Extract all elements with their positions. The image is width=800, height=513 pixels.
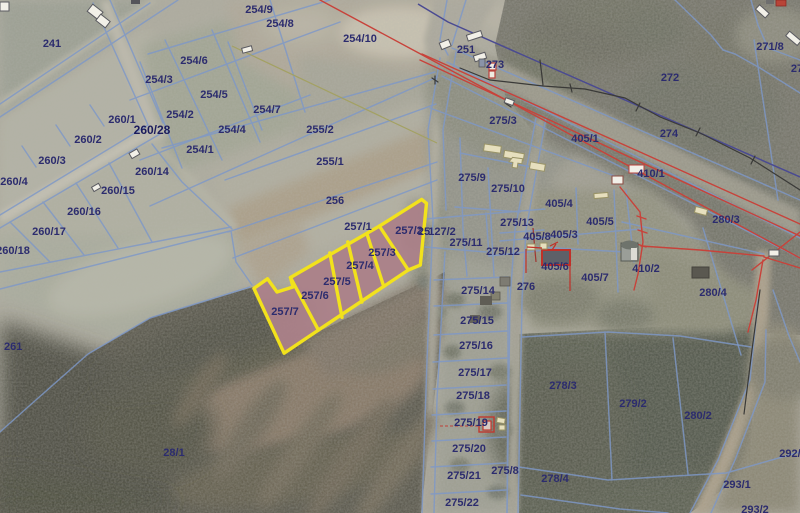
svg-text:275/16: 275/16	[459, 340, 493, 352]
svg-text:28/1: 28/1	[163, 447, 184, 459]
svg-text:255/2: 255/2	[306, 124, 334, 136]
svg-text:257/4: 257/4	[346, 260, 374, 272]
svg-text:255/1: 255/1	[316, 156, 344, 168]
svg-text:405/4: 405/4	[545, 198, 573, 210]
svg-text:275/3: 275/3	[489, 115, 517, 127]
svg-text:275/20: 275/20	[452, 443, 486, 455]
svg-text:260/16: 260/16	[67, 206, 101, 218]
svg-text:260/14: 260/14	[135, 166, 170, 178]
svg-text:257/5: 257/5	[323, 276, 351, 288]
svg-text:280/3: 280/3	[712, 214, 740, 226]
svg-text:405/8: 405/8	[523, 231, 551, 243]
svg-text:260/15: 260/15	[101, 185, 135, 197]
svg-text:260/28: 260/28	[134, 123, 171, 137]
svg-text:260/17: 260/17	[32, 226, 66, 238]
svg-text:260/3: 260/3	[38, 155, 66, 167]
svg-text:260/2: 260/2	[74, 134, 102, 146]
svg-text:260/18: 260/18	[0, 245, 30, 257]
svg-text:272: 272	[661, 72, 679, 84]
svg-text:254/9: 254/9	[245, 4, 273, 16]
svg-text:257/2: 257/2	[395, 225, 423, 237]
svg-text:254/6: 254/6	[180, 55, 208, 67]
svg-text:275/21: 275/21	[447, 470, 481, 482]
svg-text:405/3: 405/3	[550, 229, 578, 241]
svg-text:254/7: 254/7	[253, 104, 281, 116]
svg-text:260/4: 260/4	[0, 176, 28, 188]
svg-text:275/10: 275/10	[491, 183, 525, 195]
svg-text:405/1: 405/1	[571, 133, 599, 145]
svg-text:275/22: 275/22	[445, 497, 479, 509]
svg-text:292/2: 292/2	[779, 448, 800, 460]
svg-text:405/5: 405/5	[586, 216, 614, 228]
svg-text:273: 273	[486, 59, 504, 71]
svg-text:254/3: 254/3	[145, 74, 173, 86]
svg-text:260/1: 260/1	[108, 114, 136, 126]
svg-text:274: 274	[660, 128, 679, 140]
svg-text:278/3: 278/3	[549, 380, 577, 392]
svg-text:254/10: 254/10	[343, 33, 377, 45]
svg-text:275/14: 275/14	[461, 285, 496, 297]
svg-text:254/8: 254/8	[266, 18, 294, 30]
svg-text:278/4: 278/4	[541, 473, 569, 485]
svg-text:275/8: 275/8	[491, 465, 519, 477]
svg-text:275/17: 275/17	[458, 367, 492, 379]
svg-text:257/6: 257/6	[301, 290, 329, 302]
svg-text:275/9: 275/9	[458, 172, 486, 184]
svg-text:251: 251	[457, 44, 475, 56]
svg-text:293/2: 293/2	[741, 504, 769, 513]
svg-text:293/1: 293/1	[723, 479, 751, 491]
svg-text:254/4: 254/4	[218, 124, 246, 136]
svg-text:275/15: 275/15	[460, 315, 494, 327]
svg-text:257/3: 257/3	[368, 247, 396, 259]
svg-text:276: 276	[517, 281, 535, 293]
svg-text:257/1: 257/1	[344, 221, 372, 233]
svg-text:271/8: 271/8	[756, 41, 784, 53]
svg-text:241: 241	[43, 38, 61, 50]
svg-text:254/1: 254/1	[186, 144, 214, 156]
svg-text:275/13: 275/13	[500, 217, 534, 229]
svg-text:275/19: 275/19	[454, 417, 488, 429]
svg-text:410/2: 410/2	[632, 263, 660, 275]
svg-text:257/7: 257/7	[271, 306, 299, 318]
svg-text:405/7: 405/7	[581, 272, 609, 284]
svg-text:410/1: 410/1	[637, 168, 665, 180]
svg-text:275/12: 275/12	[486, 246, 520, 258]
svg-text:280/2: 280/2	[684, 410, 712, 422]
svg-text:27: 27	[791, 63, 800, 75]
svg-text:405/6: 405/6	[541, 261, 569, 273]
svg-text:261: 261	[4, 341, 22, 353]
svg-text:280/4: 280/4	[699, 287, 727, 299]
svg-text:254/5: 254/5	[200, 89, 228, 101]
svg-text:275/11: 275/11	[449, 237, 482, 249]
svg-text:256: 256	[326, 195, 344, 207]
svg-text:254/2: 254/2	[166, 109, 194, 121]
svg-text:275/18: 275/18	[456, 390, 490, 402]
svg-text:279/2: 279/2	[619, 398, 647, 410]
